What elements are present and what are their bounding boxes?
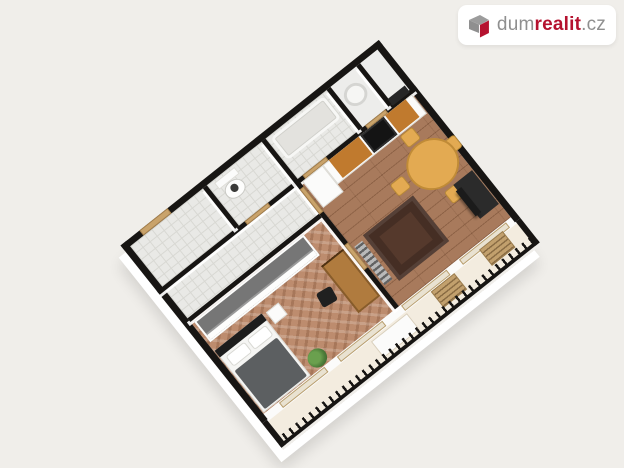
brand-suffix: .cz: [581, 14, 606, 35]
apartment-plan: [121, 40, 542, 450]
brand-prefix: dum: [497, 14, 535, 35]
building-cube-icon: [468, 13, 490, 38]
brand-accent: realit: [534, 14, 581, 35]
brand-wordmark: dumrealit.cz: [497, 14, 606, 36]
floorplan-render: dumrealit.cz: [0, 0, 624, 468]
brand-logo: dumrealit.cz: [458, 5, 616, 45]
floorplan-scene: [0, 0, 624, 468]
